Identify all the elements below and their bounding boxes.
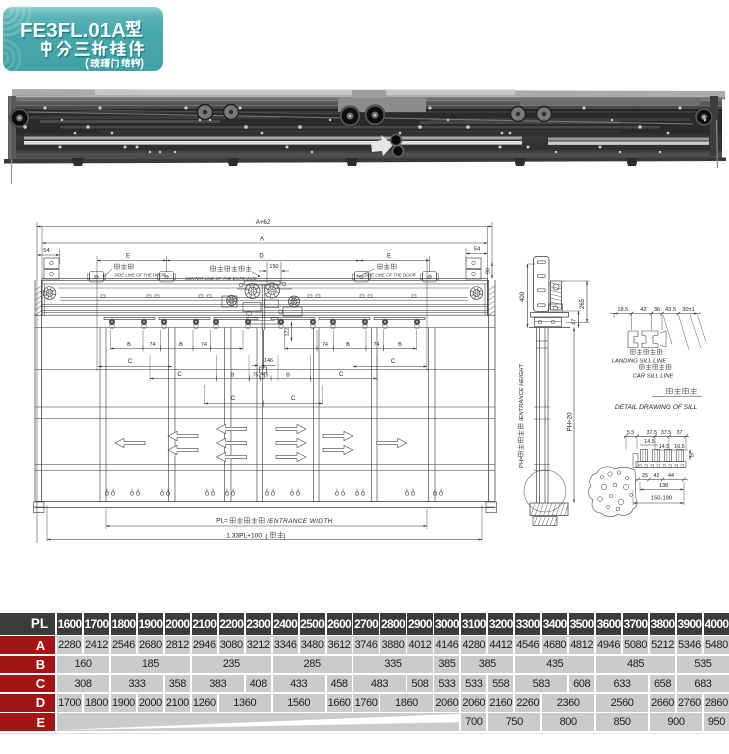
svg-text:A: A <box>260 236 265 243</box>
svg-text:54: 54 <box>43 248 50 254</box>
svg-text:FE3FL.01A: FE3FL.01A <box>20 19 126 42</box>
svg-text:75: 75 <box>253 373 259 379</box>
svg-text:42: 42 <box>654 473 660 479</box>
svg-text:C: C <box>177 372 182 378</box>
svg-text:DETAIL DRAWING OF SILL: DETAIL DRAWING OF SILL <box>615 404 698 411</box>
svg-text:74: 74 <box>150 342 156 348</box>
svg-text:37.5: 37.5 <box>647 430 658 436</box>
svg-text:42: 42 <box>640 307 646 313</box>
svg-text:5: 5 <box>691 453 694 459</box>
svg-text:150-190: 150-190 <box>651 496 672 502</box>
svg-text:90: 90 <box>486 268 492 274</box>
svg-text:122: 122 <box>285 328 291 337</box>
svg-text:14.5: 14.5 <box>644 439 655 445</box>
svg-text:B: B <box>398 342 402 348</box>
svg-text:C: C <box>339 372 344 378</box>
svg-text:37.5: 37.5 <box>661 430 672 436</box>
svg-text:B: B <box>179 342 183 348</box>
svg-text:75: 75 <box>263 373 269 379</box>
svg-text:SIDE LINE OF THE DOOR: SIDE LINE OF THE DOOR <box>364 273 416 278</box>
svg-text:C: C <box>291 396 296 402</box>
svg-text:1.33PL+100: 1.33PL+100 <box>226 533 262 540</box>
svg-text:47: 47 <box>572 319 578 325</box>
svg-text:36: 36 <box>654 307 660 313</box>
svg-text:74: 74 <box>374 342 380 348</box>
svg-text:): ) <box>283 533 285 540</box>
svg-text:PH=: PH= <box>519 456 525 468</box>
svg-text:25: 25 <box>642 473 648 479</box>
svg-text:54: 54 <box>474 247 481 253</box>
svg-text:CAR SILL LINE: CAR SILL LINE <box>633 374 674 380</box>
svg-text:(: ( <box>85 56 89 70</box>
svg-text:E: E <box>387 254 391 260</box>
svg-text:138: 138 <box>659 483 668 489</box>
svg-text:400: 400 <box>519 291 526 302</box>
svg-text:43.5: 43.5 <box>665 307 676 313</box>
svg-text:14.5: 14.5 <box>659 444 670 450</box>
svg-text:/ENTRANCE WIDTH: /ENTRANCE WIDTH <box>266 518 333 525</box>
svg-text:44: 44 <box>668 473 674 479</box>
svg-text:37: 37 <box>677 430 683 436</box>
svg-text:5.5: 5.5 <box>627 430 635 436</box>
svg-text:C: C <box>231 396 236 402</box>
svg-text:B: B <box>346 342 350 348</box>
svg-text:30±1: 30±1 <box>682 307 694 313</box>
svg-text:D: D <box>259 254 264 260</box>
svg-text:/ENTRANCE HEIGHT: /ENTRANCE HEIGHT <box>519 364 525 422</box>
svg-text:74: 74 <box>322 342 328 348</box>
svg-text:16.5: 16.5 <box>674 444 685 450</box>
svg-text:18.5: 18.5 <box>617 307 628 313</box>
svg-text:LANDING SILL LINE: LANDING SILL LINE <box>612 359 667 365</box>
svg-text:B: B <box>127 342 131 348</box>
svg-text:(: ( <box>265 533 268 540</box>
svg-text:150: 150 <box>269 264 278 270</box>
svg-text:74: 74 <box>201 342 207 348</box>
svg-text:146: 146 <box>264 358 273 364</box>
svg-text:SIDE LINE OF THE DOOR: SIDE LINE OF THE DOOR <box>114 273 166 278</box>
svg-text:265: 265 <box>580 298 586 309</box>
svg-text:PH+20: PH+20 <box>567 412 574 432</box>
svg-text:A+62: A+62 <box>256 219 271 226</box>
svg-text:C: C <box>391 359 396 365</box>
svg-text:C: C <box>128 359 133 365</box>
svg-text:PL=: PL= <box>216 518 228 525</box>
svg-text:B: B <box>286 373 290 379</box>
svg-text:E: E <box>126 254 130 260</box>
